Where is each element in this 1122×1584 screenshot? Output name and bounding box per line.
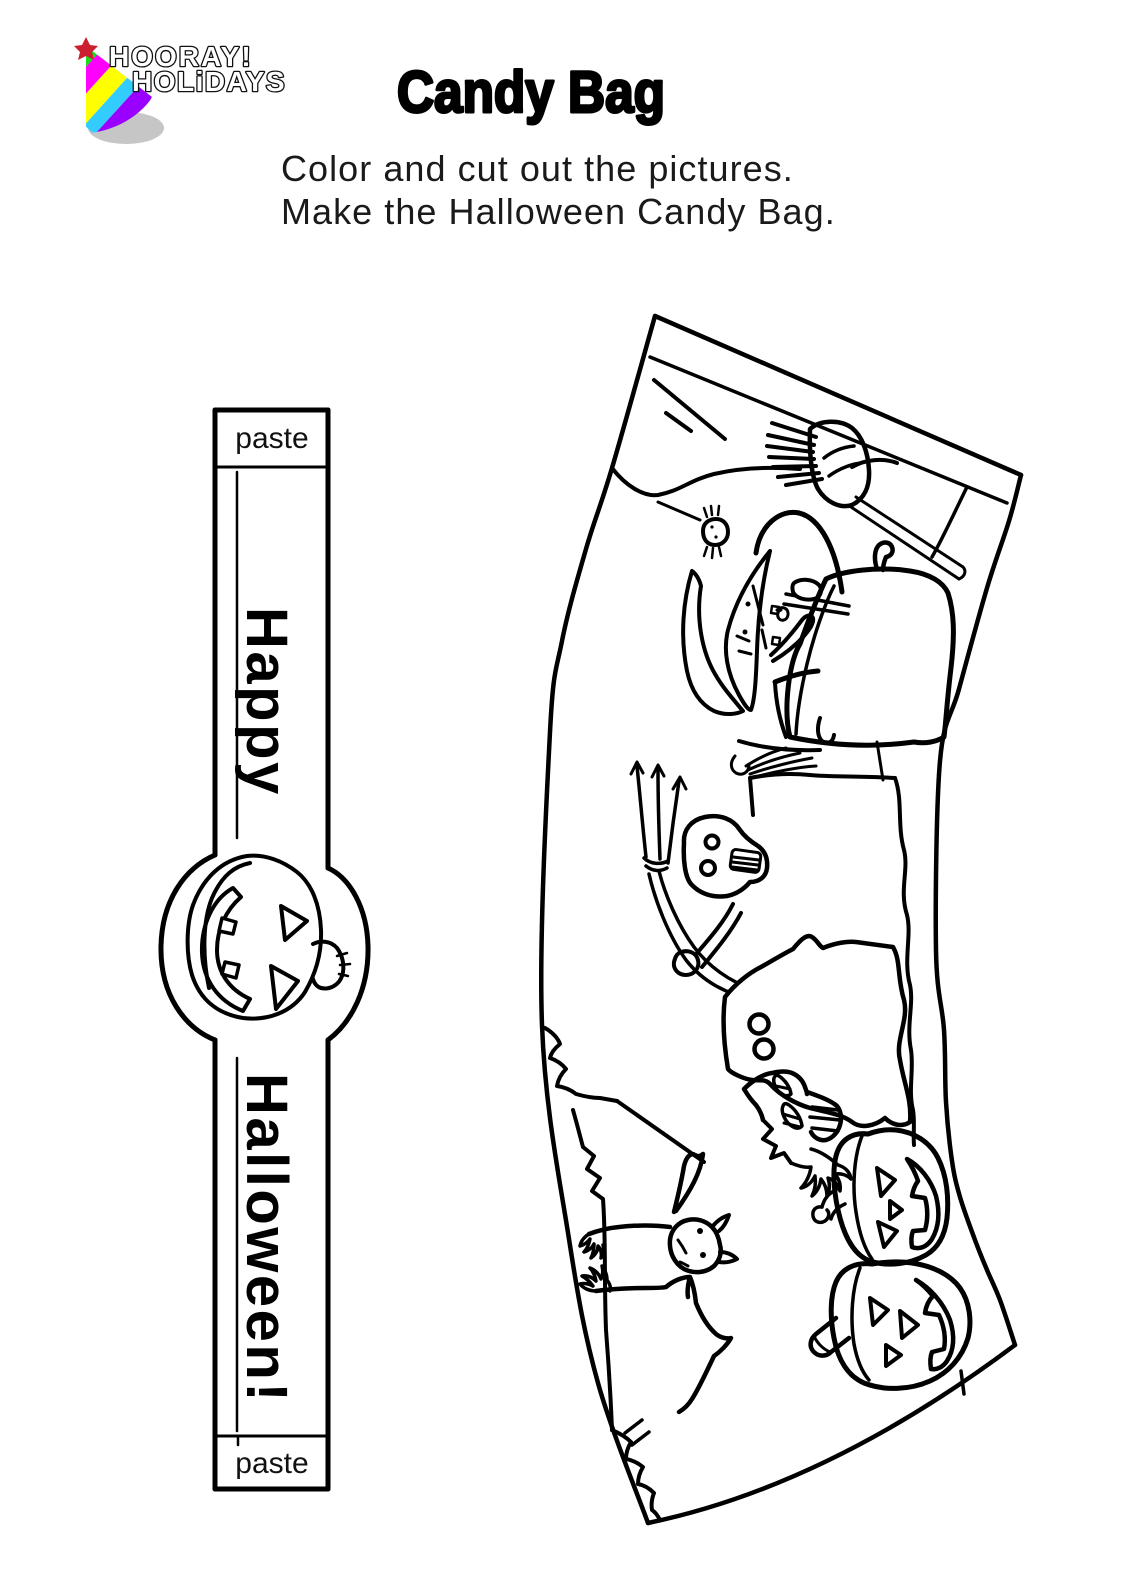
svg-text:Color and cut out the pictures: Color and cut out the pictures. (281, 148, 794, 189)
svg-text:paste: paste (235, 1447, 308, 1480)
svg-text:HOLiDAYS: HOLiDAYS (132, 66, 286, 97)
svg-text:Happy: Happy (234, 607, 299, 797)
svg-text:Make the Halloween Candy Bag.: Make the Halloween Candy Bag. (281, 191, 836, 232)
svg-text:Candy Bag: Candy Bag (397, 60, 665, 125)
svg-text:paste: paste (235, 422, 308, 455)
svg-text:Halloween!: Halloween! (234, 1073, 299, 1404)
